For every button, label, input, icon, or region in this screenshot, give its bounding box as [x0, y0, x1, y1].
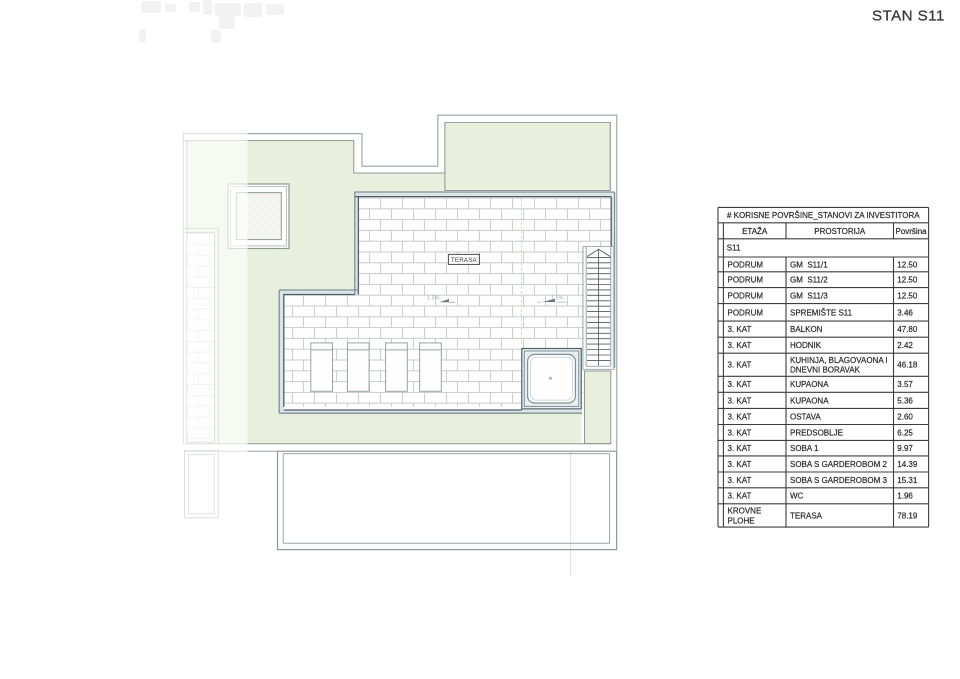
svg-text:STAN S11: STAN S11	[872, 8, 945, 25]
svg-text:PREDSOBLJE: PREDSOBLJE	[790, 428, 843, 437]
svg-text:3. KAT: 3. KAT	[728, 325, 752, 334]
svg-text:47.80: 47.80	[897, 325, 918, 334]
svg-text:3.57: 3.57	[897, 380, 913, 389]
svg-text:KUHINJA, BLAGOVAONA I: KUHINJA, BLAGOVAONA I	[790, 356, 888, 365]
svg-text:TERASA: TERASA	[451, 257, 478, 264]
svg-text:3. KAT: 3. KAT	[728, 380, 752, 389]
svg-text:12.50: 12.50	[897, 292, 918, 301]
svg-text:PROSTORIJA: PROSTORIJA	[814, 227, 866, 236]
svg-text:12.50: 12.50	[897, 276, 918, 285]
svg-text:15.31: 15.31	[897, 476, 918, 485]
svg-text:6.25: 6.25	[897, 428, 913, 437]
svg-text:PODRUM: PODRUM	[728, 276, 764, 285]
svg-text:SOBA S GARDEROBOM 2: SOBA S GARDEROBOM 2	[790, 460, 887, 469]
svg-text:PODRUM: PODRUM	[728, 292, 764, 301]
svg-text:3. KAT: 3. KAT	[728, 361, 752, 370]
svg-text:TERASA: TERASA	[790, 511, 823, 520]
svg-text:3. KAT: 3. KAT	[728, 341, 752, 350]
svg-text:DNEVNI BORAVAK: DNEVNI BORAVAK	[790, 366, 861, 375]
svg-text:3. KAT: 3. KAT	[728, 460, 752, 469]
svg-text:3. KAT: 3. KAT	[728, 428, 752, 437]
svg-text:# KORISNE POVRŠINE_STANOVI ZA: # KORISNE POVRŠINE_STANOVI ZA INVESTITOR…	[727, 211, 920, 220]
svg-text:WC: WC	[790, 492, 804, 501]
svg-text:12.50: 12.50	[897, 260, 918, 269]
svg-text:OSTAVA: OSTAVA	[790, 412, 821, 421]
svg-text:14.39: 14.39	[897, 460, 918, 469]
svg-text:78.19: 78.19	[897, 511, 918, 520]
svg-text:ETAŽA: ETAŽA	[742, 227, 768, 236]
svg-text:SOBA 1: SOBA 1	[790, 444, 819, 453]
svg-text:5.36: 5.36	[897, 396, 913, 405]
svg-text:2.60: 2.60	[897, 412, 913, 421]
svg-text:GM S11/2: GM S11/2	[790, 276, 828, 285]
svg-text:GM S11/1: GM S11/1	[790, 260, 828, 269]
svg-text:9.97: 9.97	[897, 444, 913, 453]
svg-text:3. KAT: 3. KAT	[728, 412, 752, 421]
svg-text:HODNIK: HODNIK	[790, 341, 822, 350]
svg-text:3. KAT: 3. KAT	[728, 444, 752, 453]
svg-text:Površina: Površina	[895, 227, 927, 236]
svg-text:BALKON: BALKON	[790, 325, 823, 334]
svg-text:GM S11/3: GM S11/3	[790, 292, 828, 301]
svg-text:3. KAT: 3. KAT	[728, 476, 752, 485]
svg-text:SOBA S GARDEROBOM 3: SOBA S GARDEROBOM 3	[790, 476, 887, 485]
svg-text:46.18: 46.18	[897, 361, 918, 370]
svg-text:PLOHE: PLOHE	[728, 516, 755, 525]
svg-text:3. KAT: 3. KAT	[728, 396, 752, 405]
svg-text:3. KAT: 3. KAT	[728, 492, 752, 501]
svg-text:PODRUM: PODRUM	[728, 260, 764, 269]
svg-text:3.46: 3.46	[897, 308, 913, 317]
svg-text:1.96: 1.96	[897, 492, 913, 501]
svg-text:KROVNE: KROVNE	[728, 507, 762, 516]
svg-text:SPREMIŠTE S11: SPREMIŠTE S11	[790, 308, 853, 317]
svg-text:KUPAONA: KUPAONA	[790, 396, 829, 405]
svg-text:2.42: 2.42	[897, 341, 913, 350]
svg-text:PODRUM: PODRUM	[728, 308, 764, 317]
svg-text:S11: S11	[727, 244, 741, 253]
svg-text:1.5%: 1.5%	[427, 296, 440, 302]
svg-text:KUPAONA: KUPAONA	[790, 380, 829, 389]
